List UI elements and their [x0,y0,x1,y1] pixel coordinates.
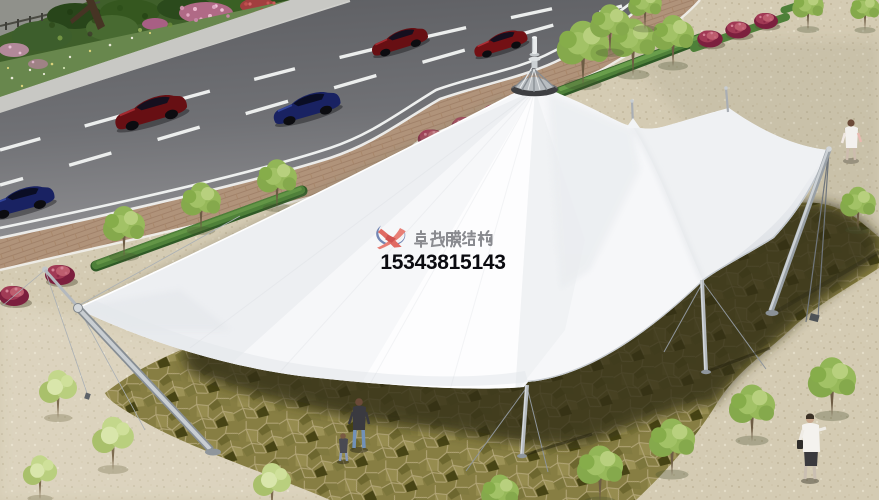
svg-text:15343815143: 15343815143 [380,251,505,274]
